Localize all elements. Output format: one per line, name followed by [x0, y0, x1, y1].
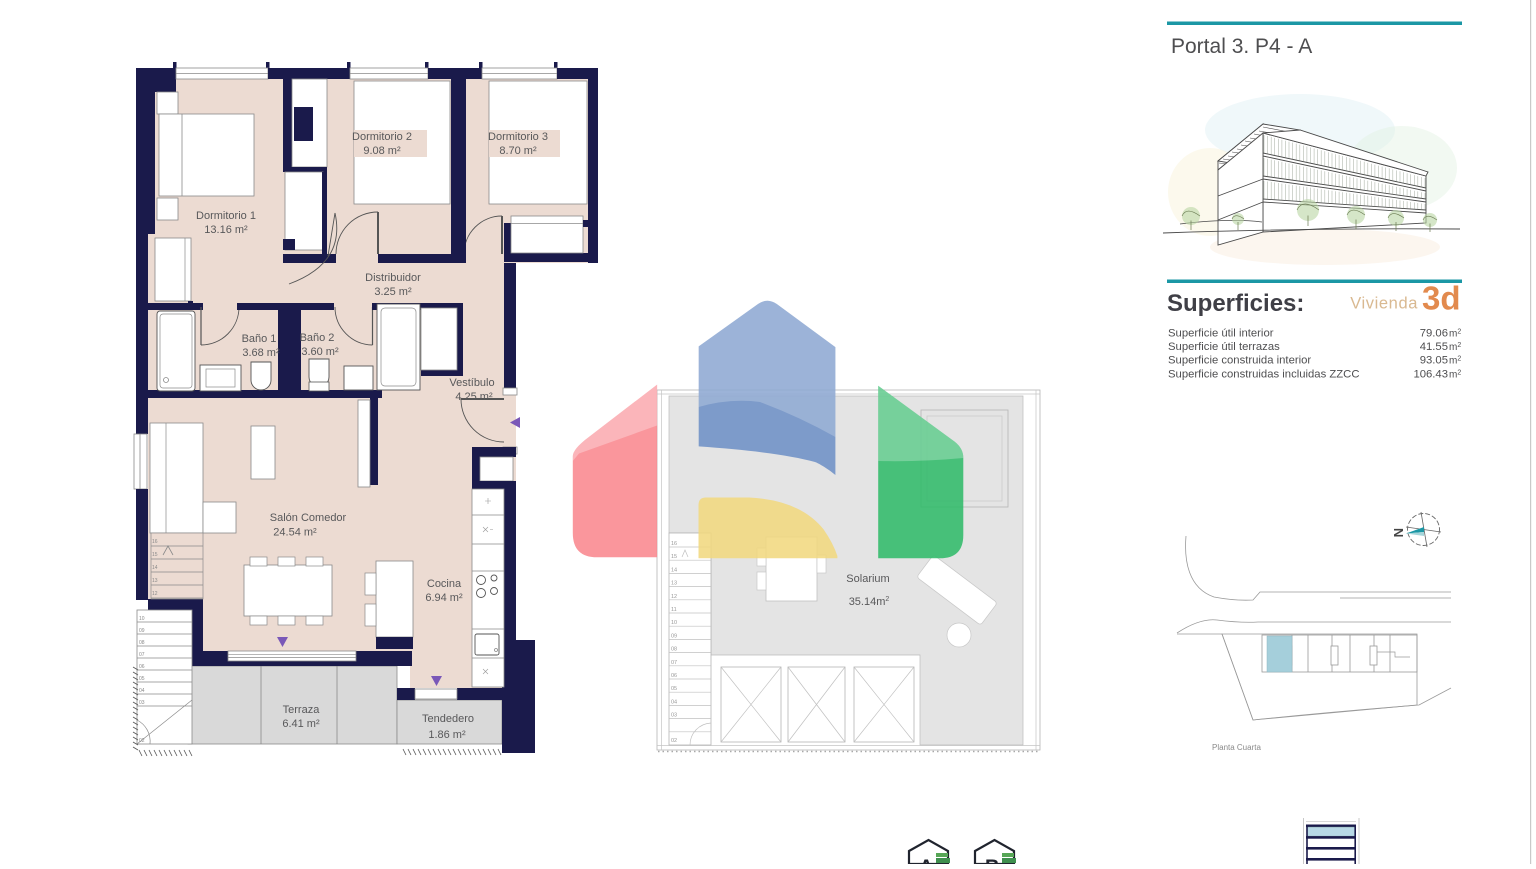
svg-text:16: 16 [152, 539, 158, 545]
svg-text:6.94 m²: 6.94 m² [425, 592, 463, 604]
svg-text:Distribuidor: Distribuidor [365, 272, 421, 284]
svg-text:3.25 m²: 3.25 m² [374, 286, 412, 298]
svg-text:Vivienda: Vivienda [1350, 295, 1418, 313]
svg-text:06: 06 [139, 664, 145, 670]
svg-text:03: 03 [139, 700, 145, 706]
svg-text:Superficie construidas incluid: Superficie construidas incluidas ZZCC [1168, 368, 1360, 380]
svg-text:Dormitorio 2: Dormitorio 2 [352, 131, 412, 143]
svg-text:09: 09 [671, 633, 677, 639]
svg-text:16: 16 [671, 541, 677, 547]
svg-text:02: 02 [139, 738, 145, 744]
svg-text:Vestíbulo: Vestíbulo [449, 377, 494, 389]
svg-text:08: 08 [671, 647, 677, 653]
svg-text:Cocina: Cocina [427, 578, 462, 590]
svg-text:13: 13 [152, 578, 158, 584]
svg-text:m2: m2 [1449, 369, 1461, 380]
svg-text:Superficie construida interior: Superficie construida interior [1168, 355, 1311, 367]
svg-text:Dormitorio 3: Dormitorio 3 [488, 131, 548, 143]
svg-text:3.68 m²: 3.68 m² [242, 347, 280, 359]
svg-text:35.14m2: 35.14m2 [849, 596, 890, 608]
svg-text:79.06: 79.06 [1420, 328, 1448, 340]
svg-text:10: 10 [139, 616, 145, 622]
svg-text:Portal 3. P4 - A: Portal 3. P4 - A [1171, 35, 1312, 58]
svg-text:05: 05 [671, 686, 677, 692]
svg-text:93.05: 93.05 [1420, 355, 1448, 367]
svg-text:Dormitorio 1: Dormitorio 1 [196, 210, 256, 222]
svg-text:m2: m2 [1449, 329, 1461, 340]
svg-text:02: 02 [671, 738, 677, 744]
svg-text:04: 04 [139, 688, 145, 694]
svg-text:Planta Cuarta: Planta Cuarta [1212, 743, 1261, 752]
svg-text:Terraza: Terraza [283, 704, 321, 716]
svg-text:13.16 m²: 13.16 m² [204, 224, 248, 236]
svg-text:08: 08 [139, 640, 145, 646]
svg-text:06: 06 [671, 673, 677, 679]
svg-text:6.41 m²: 6.41 m² [282, 718, 320, 730]
svg-text:m2: m2 [1449, 342, 1461, 353]
svg-text:13: 13 [671, 581, 677, 587]
svg-text:N: N [1391, 528, 1406, 537]
svg-text:05: 05 [139, 676, 145, 682]
svg-text:Solarium: Solarium [846, 573, 889, 585]
svg-text:9.08 m²: 9.08 m² [363, 145, 401, 157]
svg-text:Baño 1: Baño 1 [242, 333, 277, 345]
svg-text:8.70 m²: 8.70 m² [499, 145, 537, 157]
svg-text:10: 10 [671, 620, 677, 626]
svg-text:3d: 3d [1422, 280, 1461, 317]
svg-text:4.25 m²: 4.25 m² [455, 391, 493, 403]
svg-text:1.86 m²: 1.86 m² [428, 729, 466, 741]
svg-text:106.43: 106.43 [1413, 368, 1448, 380]
svg-text:Baño 2: Baño 2 [300, 332, 335, 344]
svg-text:A: A [919, 857, 933, 865]
svg-text:09: 09 [139, 628, 145, 634]
svg-text:Superficies:: Superficies: [1167, 290, 1304, 317]
svg-text:24.54 m²: 24.54 m² [273, 527, 317, 539]
svg-text:Salón Comedor: Salón Comedor [270, 512, 347, 524]
svg-text:15: 15 [152, 552, 158, 558]
svg-text:14: 14 [152, 565, 158, 571]
svg-text:11: 11 [671, 607, 677, 613]
svg-text:12: 12 [671, 594, 677, 600]
svg-text:14: 14 [671, 567, 677, 573]
svg-text:07: 07 [671, 660, 677, 666]
svg-text:03: 03 [671, 713, 677, 719]
svg-text:Superficie útil terrazas: Superficie útil terrazas [1168, 341, 1280, 353]
svg-text:Superficie útil interior: Superficie útil interior [1168, 328, 1274, 340]
svg-text:m2: m2 [1449, 356, 1461, 367]
svg-text:12: 12 [152, 591, 158, 597]
svg-text:3.60 m²: 3.60 m² [301, 346, 339, 358]
svg-text:Tendedero: Tendedero [422, 713, 474, 725]
svg-text:15: 15 [671, 554, 677, 560]
svg-text:B: B [985, 857, 999, 865]
svg-text:41.55: 41.55 [1420, 341, 1448, 353]
svg-text:07: 07 [139, 652, 145, 658]
svg-text:04: 04 [671, 699, 677, 705]
